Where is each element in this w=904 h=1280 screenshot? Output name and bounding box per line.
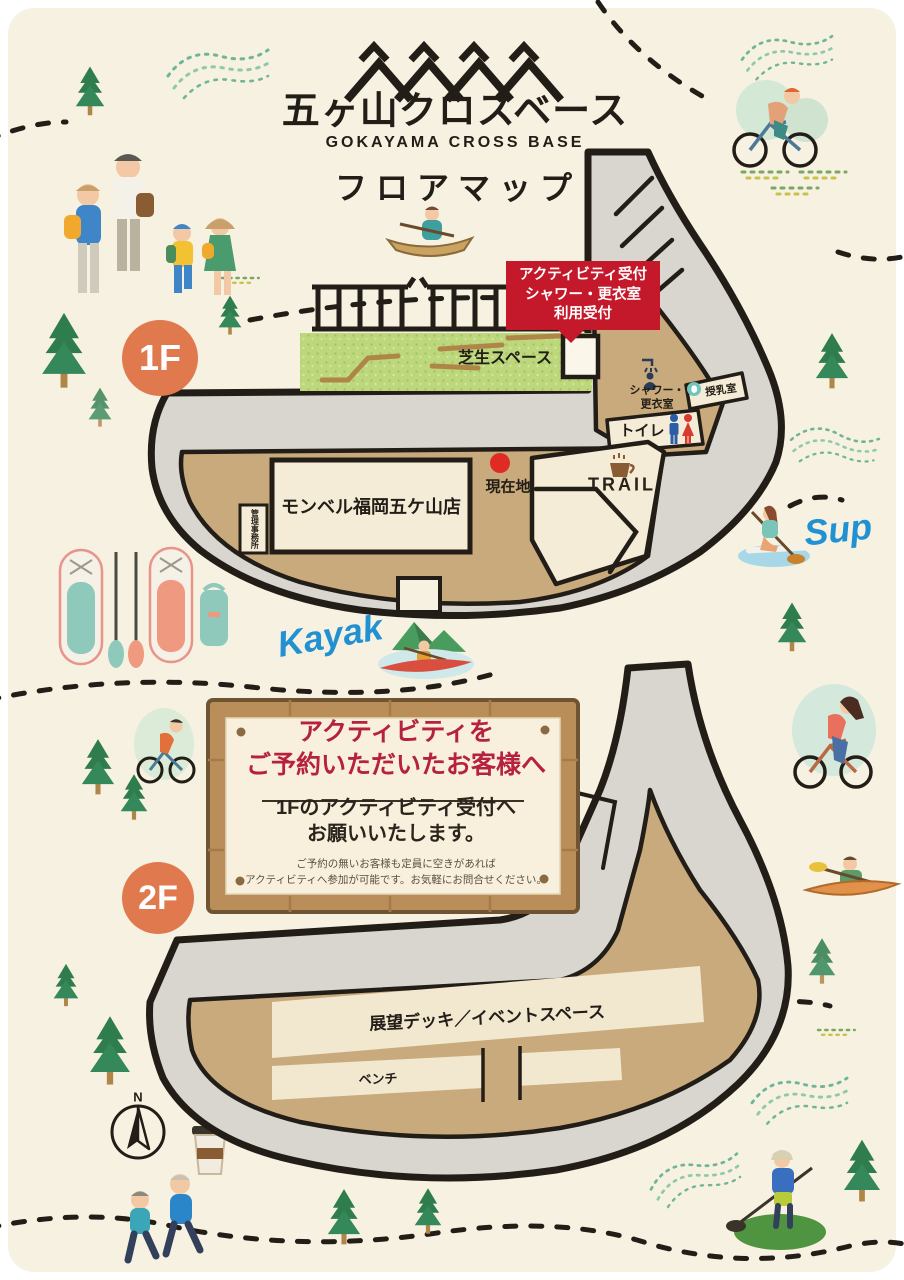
callout-line-2: シャワー・更衣室: [508, 286, 658, 306]
sign-note-line2: アクティビティへ参加が可能です。お気軽にお問合せください。: [224, 873, 568, 888]
sign-body-line1: 1Fのアクティビティ受付へ: [224, 795, 568, 821]
sign-note-line1: ご予約の無いお客様も定員に空きがあれば: [224, 857, 568, 873]
bench-label: ベンチ: [358, 1068, 398, 1088]
montbell-label: モンベル福岡五ケ山店: [281, 493, 461, 519]
callout-line-1: アクティビティ受付: [508, 266, 658, 286]
sup-annotation: Sup: [802, 506, 874, 555]
sign-body-line2: お願いいたします。: [224, 821, 568, 847]
floor1-badge-label: 1F: [139, 337, 181, 379]
nursing-room-icon: [687, 382, 701, 396]
cyclist-right-illustration: [792, 684, 876, 787]
map-title: フロアマップ: [335, 163, 581, 209]
kayaker-mid-illustration: [378, 622, 474, 679]
cyclist-downhill-illustration: [734, 80, 828, 166]
floor2-badge-label: 2F: [138, 879, 178, 918]
current-location-dot: [490, 453, 510, 473]
reception-callout: アクティビティ受付 シャワー・更衣室 利用受付: [506, 261, 660, 330]
kayaker-right-illustration: [806, 857, 898, 895]
canoe-illustration: [388, 207, 472, 257]
trail-label: TRAIL: [588, 475, 656, 496]
sign-board-text: アクティビティを ご予約いただいたお客様へ 1Fのアクティビティ受付へ お願いい…: [224, 716, 568, 887]
office-label: 管理事務所: [249, 509, 260, 549]
shower-label-line2: 更衣室: [630, 398, 685, 412]
sign-heading-line2: ご予約いただいたお客様へ: [224, 749, 568, 782]
runners-illustration: [128, 1174, 200, 1260]
shower-room-label: シャワー・ 更衣室: [630, 384, 685, 412]
callout-line-3: 利用受付: [508, 305, 658, 325]
compass-icon: [112, 1106, 164, 1158]
floor2-badge: 2F: [122, 862, 194, 934]
lawn-label: 芝生スペース: [458, 344, 552, 368]
current-location-label: 現在地: [485, 476, 530, 497]
sup-woman-illustration: [738, 506, 810, 567]
sup-person-bottom-illustration: [726, 1150, 826, 1250]
floor1-badge: 1F: [122, 320, 198, 396]
floor-map-page: 五ヶ山クロスベース GOKAYAMA CROSS BASE フロアマップ 1F …: [0, 0, 904, 1280]
toilet-label: トイレ: [619, 420, 664, 441]
cyclist-left-illustration: [134, 708, 194, 782]
office-label-col2: 事務所: [250, 525, 259, 549]
site-title-en: GOKAYAMA CROSS BASE: [326, 134, 585, 152]
compass-north-label: N: [133, 1090, 142, 1105]
sign-heading-line1: アクティビティを: [224, 716, 568, 749]
office-label-col1: 管理: [250, 509, 259, 525]
shower-label-line1: シャワー・: [630, 384, 685, 398]
site-title: 五ヶ山クロスベース: [282, 80, 628, 135]
family-walking-illustration: [64, 154, 236, 295]
sup-boards-illustration: [60, 548, 228, 668]
